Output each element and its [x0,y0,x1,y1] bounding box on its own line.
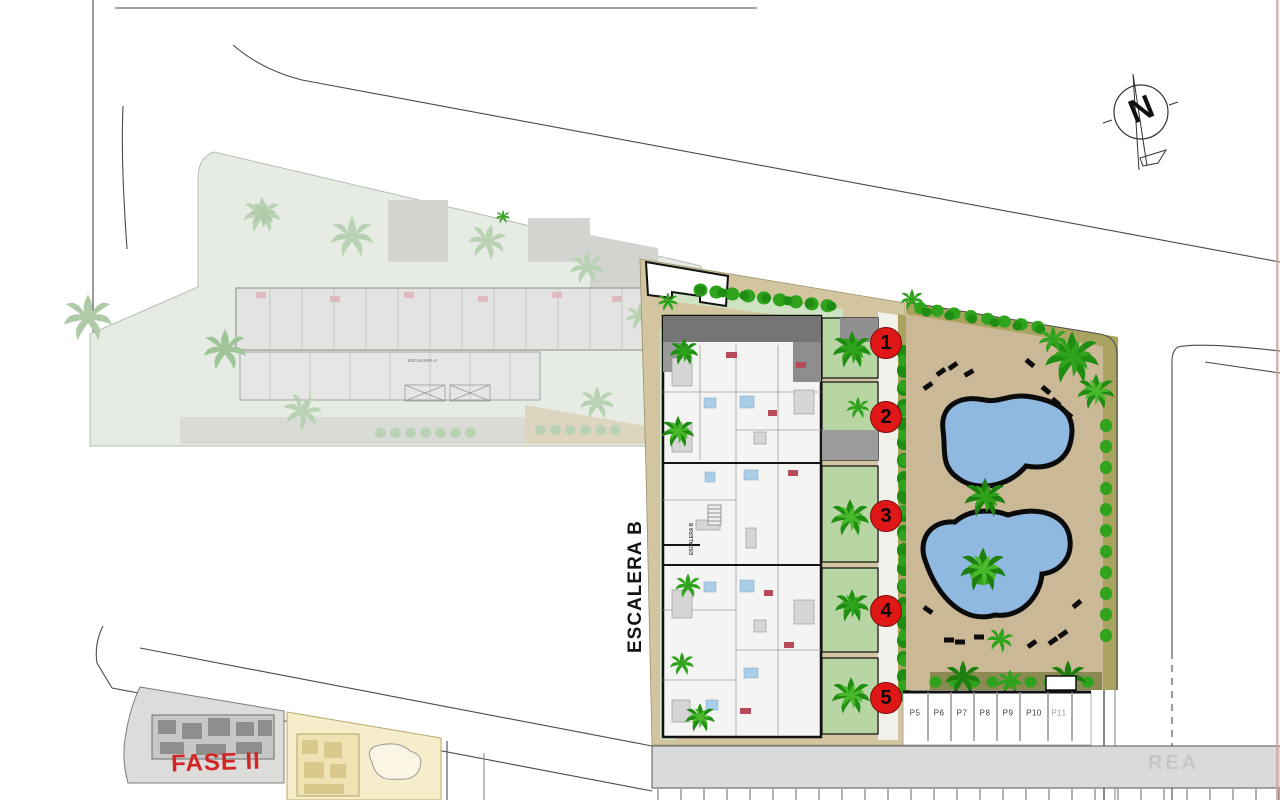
fase2-label: FASE II [160,747,273,779]
watermark: REA [1148,752,1199,775]
parking-space-p10: P10 [1026,709,1042,718]
street-parking-ticks [658,789,1279,800]
parking-space-p5: P5 [910,709,921,718]
escalera-b-inner-label: ESCALERA B [689,523,695,555]
site-plan-drawing [0,0,1280,800]
unit-marker-4[interactable]: 4 [870,595,902,627]
unit-marker-5[interactable]: 5 [870,682,902,714]
parking-space-p6: P6 [934,709,945,718]
parking-space-p11: P11 [1051,709,1066,718]
utility-box [1046,676,1076,690]
parking-space-p7: P7 [957,709,968,718]
faded-parcel [64,152,706,446]
stairs [708,505,721,525]
site-plan-canvas: ESCALERA B ESCALERA B ESCALERA A FASE II… [0,0,1280,800]
page-border [1276,0,1279,800]
unit-marker-2[interactable]: 2 [870,401,902,433]
unit-marker-3[interactable]: 3 [870,500,902,532]
escalera-b-label: ESCALERA B [625,523,647,653]
escalera-a-inner-label: ESCALERA A [408,358,437,363]
pool-parcel [901,289,1118,694]
parking-space-p8: P8 [980,709,991,718]
unit-marker-1[interactable]: 1 [870,327,902,359]
parking-space-p9: P9 [1003,709,1014,718]
yellow-parcel [287,712,441,800]
central-parcel [640,259,908,745]
